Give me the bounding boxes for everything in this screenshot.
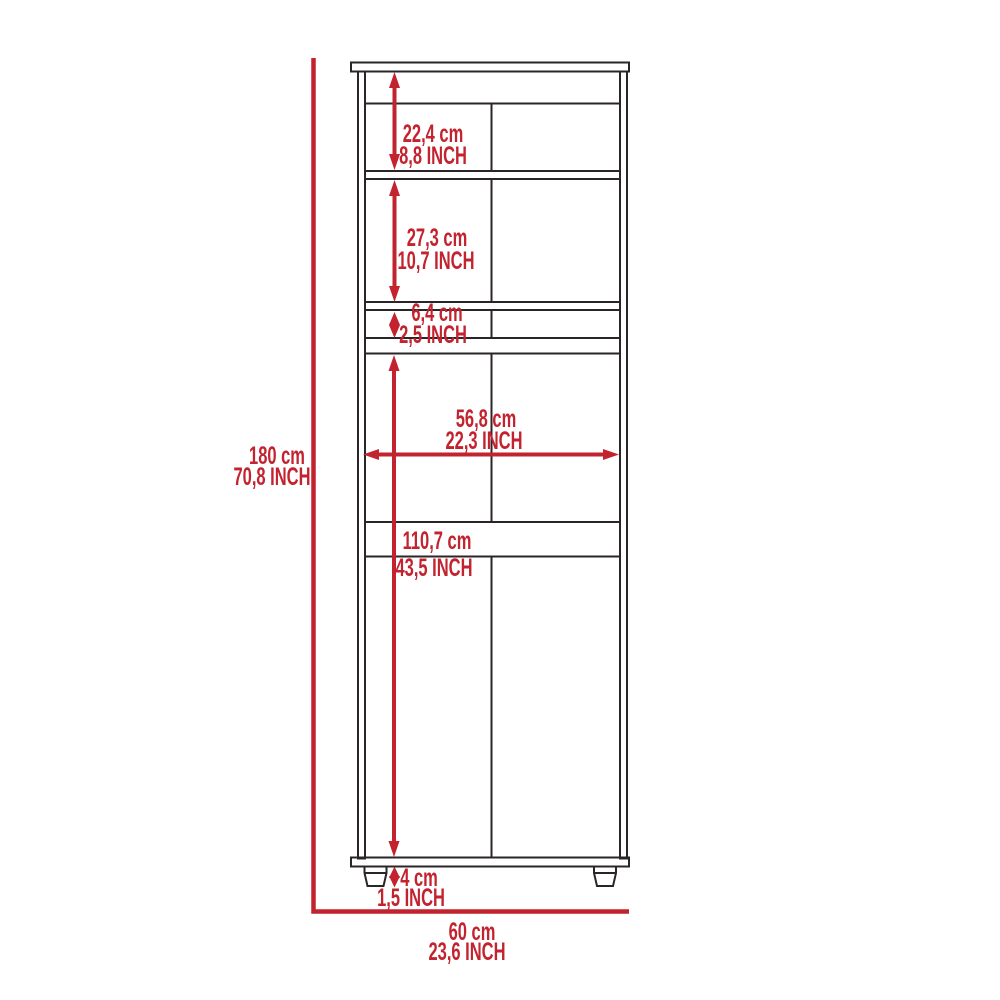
total-width-label-inch: 23,6 INCH [428,939,505,966]
small-compartment-arrow [389,312,400,338]
upper-compartment-label-inch: 10,7 INCH [397,248,474,275]
lower-compartment-label-cm: 110,7 cm [403,528,472,555]
overall-extent-line [314,58,630,912]
dimension-annotations: 180 cm 70,8 INCH 60 cm 23,6 INCH 22,4 cm… [233,58,629,966]
total-height-label-inch: 70,8 INCH [233,464,310,491]
cabinet-bottom-board [351,858,629,867]
cabinet-left-panel [358,72,365,859]
cabinet-left-leg [365,867,387,887]
leg-height-label-inch: 1,5 INCH [377,885,445,912]
upper-compartment-arrow [389,180,400,302]
cabinet-right-panel [620,72,627,859]
arrow-down-head [389,841,400,857]
diagram-canvas: 180 cm 70,8 INCH 60 cm 23,6 INCH 22,4 cm… [0,0,1000,1000]
arrow-right-head [603,449,619,460]
arrow-down-head [389,325,400,338]
lower-compartment-label-inch: 43,5 INCH [395,555,472,582]
interior-width-label-inch: 22,3 INCH [445,428,522,455]
top-compartment-label-inch: 8,8 INCH [399,143,467,170]
right-leg-shape [594,867,616,887]
arrow-down-head [389,154,400,170]
cabinet-top-board [351,63,629,72]
shelf-band-2 [365,302,620,310]
cabinet-dimension-diagram: 180 cm 70,8 INCH 60 cm 23,6 INCH 22,4 cm… [0,0,1000,1000]
small-compartment-label-inch: 2,5 INCH [399,322,467,349]
left-leg-shape [365,867,387,887]
arrow-down-head [389,286,400,302]
lower-compartment-arrow [389,355,400,857]
top-compartment-arrow [389,72,400,170]
shelf-band-1 [365,171,620,179]
cabinet-right-leg [594,867,616,887]
